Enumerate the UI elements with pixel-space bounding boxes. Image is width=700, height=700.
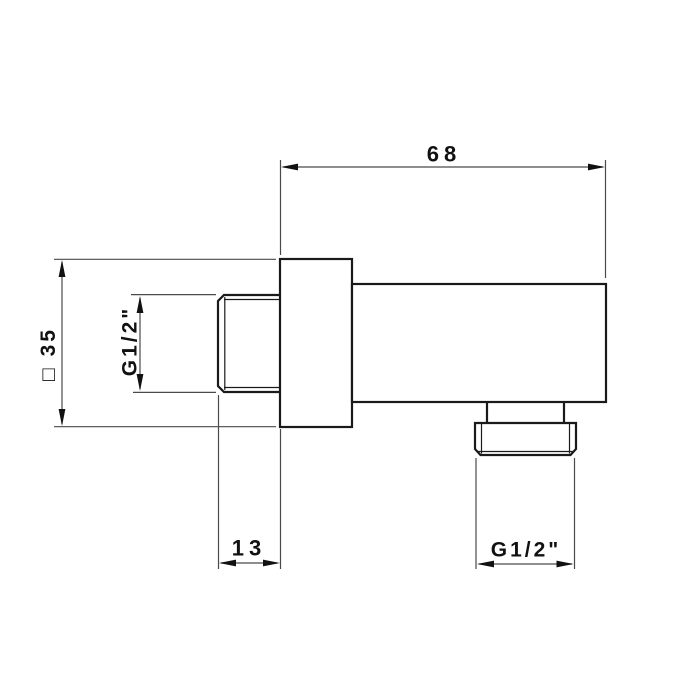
body-outline <box>352 284 606 402</box>
dimension-projection: 13 <box>219 395 281 569</box>
dim-label-square: □ 35 <box>37 327 60 381</box>
arrow-up-icon <box>59 260 66 277</box>
dimension-top-length: 68 <box>281 142 606 279</box>
part-body <box>352 284 606 402</box>
dim-label-inlet-thread: G1/2" <box>119 306 142 376</box>
arrow-right-icon <box>588 164 605 171</box>
arrow-down-icon <box>59 409 66 426</box>
dim-label-projection: 13 <box>232 536 266 561</box>
arrow-left-icon <box>219 560 236 567</box>
technical-drawing-canvas: 68 □ 35 G1/2" 13 <box>0 0 700 700</box>
arrow-right-icon <box>557 561 574 568</box>
dim-label-length: 68 <box>427 142 461 167</box>
dimension-inlet-thread: G1/2" <box>119 295 217 393</box>
outlet-nut-outline <box>475 423 576 455</box>
dimension-outlet-thread: G1/2" <box>476 458 575 569</box>
arrow-left-icon <box>281 164 298 171</box>
part-inlet-fitting <box>218 295 281 392</box>
inlet-fitting-outline <box>218 295 281 392</box>
arrow-right-icon <box>263 560 280 567</box>
flange-outline <box>280 259 352 427</box>
dim-label-outlet-thread: G1/2" <box>491 539 561 562</box>
part-flange <box>280 259 352 427</box>
part-outlet <box>475 402 576 455</box>
arrow-left-icon <box>477 561 494 568</box>
technical-drawing-page: 68 □ 35 G1/2" 13 <box>0 0 700 700</box>
